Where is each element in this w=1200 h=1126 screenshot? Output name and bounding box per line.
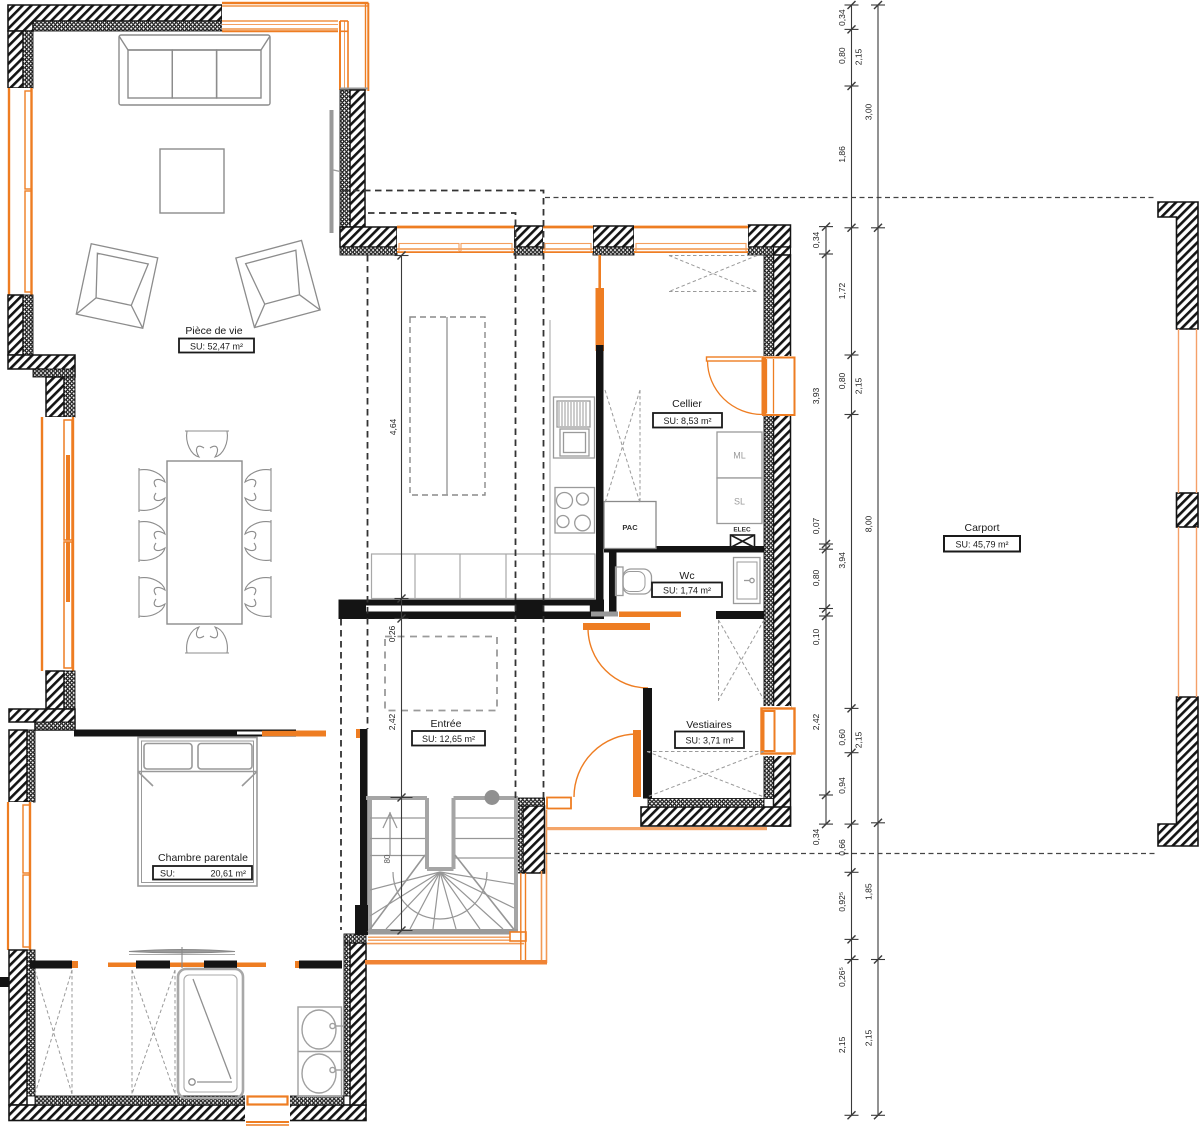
svg-text:3,94: 3,94 (837, 552, 847, 569)
svg-text:Wc: Wc (679, 570, 694, 582)
svg-text:2,15: 2,15 (854, 48, 864, 65)
svg-text:SU: 3,71 m²: SU: 3,71 m² (685, 736, 733, 746)
svg-text:0,10: 0,10 (811, 628, 821, 645)
svg-text:ML: ML (733, 451, 746, 461)
svg-text:1,86: 1,86 (837, 146, 847, 163)
svg-text:20,61 m²: 20,61 m² (210, 869, 246, 879)
svg-text:2,15: 2,15 (837, 1036, 847, 1053)
svg-text:3,00: 3,00 (864, 103, 874, 120)
svg-text:0,26: 0,26 (387, 625, 397, 642)
svg-text:SU:: SU: (160, 869, 175, 879)
svg-text:SU: 8,53 m²: SU: 8,53 m² (663, 416, 711, 426)
svg-text:8,00: 8,00 (864, 515, 874, 532)
svg-text:0,94: 0,94 (837, 777, 847, 794)
svg-text:0,60: 0,60 (837, 729, 847, 746)
svg-text:2,15: 2,15 (854, 731, 864, 748)
svg-text:0,34: 0,34 (837, 9, 847, 26)
svg-text:1,85: 1,85 (864, 883, 874, 900)
svg-text:0,80: 0,80 (837, 47, 847, 64)
svg-text:80: 80 (383, 854, 392, 863)
svg-text:Chambre parentale: Chambre parentale (158, 852, 248, 864)
svg-text:Carport: Carport (964, 522, 999, 534)
svg-text:SL: SL (734, 497, 745, 507)
svg-text:2,42: 2,42 (811, 713, 821, 730)
svg-text:Cellier: Cellier (672, 398, 702, 410)
svg-text:SU: 52,47 m²: SU: 52,47 m² (190, 342, 243, 352)
svg-text:0,92⁵: 0,92⁵ (837, 892, 847, 912)
svg-text:2,15: 2,15 (864, 1029, 874, 1046)
svg-text:0,07: 0,07 (811, 517, 821, 534)
svg-text:0,26⁵: 0,26⁵ (837, 967, 847, 987)
svg-text:4,64: 4,64 (388, 418, 398, 435)
svg-text:Vestiaires: Vestiaires (686, 719, 732, 731)
svg-text:SU: 45,79 m²: SU: 45,79 m² (955, 540, 1008, 550)
svg-text:SU: 12,65 m²: SU: 12,65 m² (422, 734, 475, 744)
svg-text:2,42: 2,42 (387, 713, 397, 730)
svg-text:SU: 1,74 m²: SU: 1,74 m² (663, 586, 711, 596)
svg-text:ELEC: ELEC (733, 527, 751, 534)
svg-text:1,72: 1,72 (837, 282, 847, 299)
svg-text:PAC: PAC (622, 523, 638, 532)
svg-text:0,80: 0,80 (811, 569, 821, 586)
svg-text:0,66: 0,66 (837, 839, 847, 856)
svg-text:Pièce de vie: Pièce de vie (185, 325, 242, 337)
svg-text:0,80: 0,80 (837, 372, 847, 389)
svg-text:0,34: 0,34 (811, 231, 821, 248)
svg-text:3,93: 3,93 (811, 387, 821, 404)
svg-text:Entrée: Entrée (431, 718, 462, 730)
svg-text:0,34: 0,34 (811, 828, 821, 845)
svg-text:2,15: 2,15 (854, 377, 864, 394)
